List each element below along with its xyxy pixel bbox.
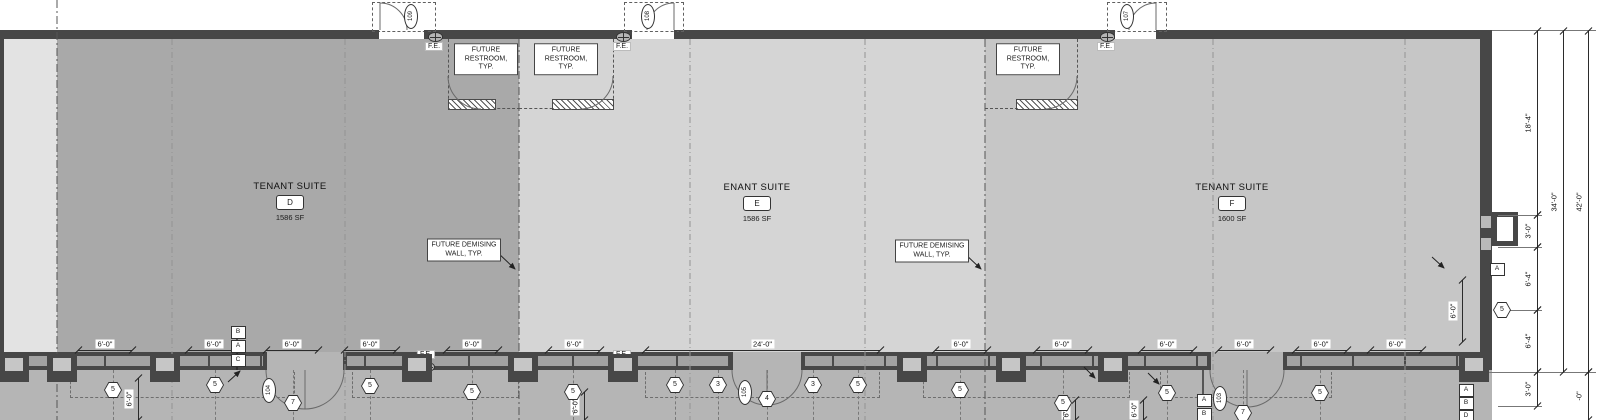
storefront-door-opening [1210,352,1284,370]
dimension-line [1295,350,1347,351]
hex-tag: 5 [1158,385,1176,401]
suite-letter-tag: E [743,196,771,211]
hex-tag: 7 [284,395,302,411]
storefront-pilaster [47,354,77,382]
restroom-note: FUTURE RESTROOM, TYP. [996,43,1060,75]
fire-extinguisher-label: F.E. [1097,42,1115,51]
adjacent-suite-strip [0,39,57,352]
storefront-pilaster [1459,354,1489,382]
storefront-pilaster [608,354,638,382]
restroom-note: FUTURE RESTROOM, TYP. [454,43,518,75]
hex-tag: 5 [951,382,969,398]
keynote-tag: A [231,340,246,353]
restroom-note: FUTURE RESTROOM, TYP. [534,43,598,75]
top-wall-segment [425,30,630,39]
hex-tag: 5 [206,377,224,393]
left-exterior-wall [0,30,4,370]
dimension-label: 6'-0" [1053,340,1072,349]
storefront-pilaster [996,354,1026,382]
dimension-line [935,350,987,351]
door-jamb [1156,30,1159,39]
hex-tag: 5 [361,378,379,394]
dimension-label: 6'-0" [1312,340,1331,349]
hex-tag: 5 [1493,302,1511,318]
dimension-label: 6'-0" [283,340,302,349]
suite-d-label: TENANT SUITE D 1586 SF [210,181,370,222]
dimension-line [645,350,880,351]
dimension-label: 42'-0" [1575,190,1584,213]
dimension-line [1537,310,1538,372]
right-wall-window [1481,216,1491,228]
door-number-tag: 109 [404,4,418,29]
storefront-door-opening [266,352,344,370]
dimension-line [1537,215,1538,247]
door-jamb [1283,352,1287,370]
suite-letter-tag: D [276,195,304,210]
plumbing-wall-hatch [552,99,614,110]
dimension-line [1218,350,1270,351]
door-number-tag: 107 [1120,4,1134,29]
suite-name: TENANT SUITE [1152,182,1312,193]
door-number-tag: 103 [1213,386,1227,411]
suite-area: 1600 SF [1152,214,1312,223]
suite-letter-tag: F [1218,196,1246,211]
dimension-line [1537,31,1538,215]
hex-tag: 5 [463,384,481,400]
dimension-line [1370,350,1422,351]
right-wall-window [1481,238,1491,250]
door-jamb [376,30,379,39]
dimension-label: 6'-0" [1235,340,1254,349]
keynote-tag: A [1197,394,1212,407]
canopy-dashed-outline [1160,372,1332,398]
dimension-label: 6'-0" [952,340,971,349]
extension-line [1492,30,1596,31]
door-jamb [424,30,427,39]
top-wall-segment [0,30,378,39]
dimension-line [1141,350,1193,351]
dimension-line [1588,31,1589,372]
dimension-label: 6'-0" [1387,340,1406,349]
door-jamb [263,352,267,370]
plumbing-wall-hatch [1016,99,1078,110]
keynote-tag: A [1459,384,1474,397]
fire-extinguisher-icon [1100,32,1115,42]
suite-name: TENANT SUITE [210,181,370,192]
door-jamb [1207,352,1211,370]
door-number-tag: 104 [262,378,276,403]
demising-note: FUTURE DEMISING WALL, TYP. [895,240,969,263]
hex-tag: 4 [758,391,776,407]
dimension-label: 6'-0" [1158,340,1177,349]
dimension-label: 6'-0" [361,340,380,349]
dimension-line [138,378,139,420]
keynote-tag: D [1459,410,1474,420]
hex-tag: 5 [1054,395,1072,411]
hex-tag: 7 [1234,405,1252,420]
fire-extinguisher-icon [428,32,443,42]
storefront-pilaster [0,354,29,382]
dimension-line [446,350,498,351]
hex-tag: 5 [1311,385,1329,401]
door-jamb [674,30,677,39]
dimension-label: 18'-4" [1524,111,1533,134]
dimension-line [1537,247,1538,310]
dimension-label: 24'-0" [751,340,774,349]
door-jamb [343,352,347,370]
dimension-label: 3'-0" [1524,222,1533,241]
dimension-line [1537,372,1538,406]
storefront-pilaster [150,354,180,382]
dimension-label: 6'-0" [205,340,224,349]
keynote-tag: B [231,326,246,339]
dimension-label: 6'-4" [1524,269,1533,288]
keynote-tag: B [1197,408,1212,420]
hex-tag: 5 [849,377,867,393]
dimension-line [266,350,318,351]
entry-vestibule [1107,2,1167,32]
suite-name: ENANT SUITE [677,182,837,193]
dimension-label: -0" [1575,389,1584,402]
storefront-door-opening [732,352,802,370]
dimension-label: 6'-4" [1524,332,1533,351]
keynote-tag: B [1459,397,1474,410]
floor-plan-canvas: TENANT SUITE D 1586 SF ENANT SUITE E 158… [0,0,1600,420]
dimension-label: 6'-0" [96,340,115,349]
demising-note: FUTURE DEMISING WALL, TYP. [427,239,501,262]
dimension-line [548,350,600,351]
storefront-pilaster [1098,354,1128,382]
fire-extinguisher-label: F.E. [613,42,631,51]
dimension-line [584,392,585,420]
dimension-line [1036,350,1088,351]
dimension-label: 6'-0" [125,390,134,409]
storefront-pilaster [897,354,927,382]
door-jamb [801,352,805,370]
suite-area: 1586 SF [210,213,370,222]
door-number-tag: 105 [738,380,752,405]
exterior-pier [1492,212,1518,246]
suite-area: 1586 SF [677,214,837,223]
dimension-label: 6'-0" [1449,302,1458,321]
keynote-tag: C [231,354,246,367]
dimension-label: 6'-0" [463,340,482,349]
door-jamb [729,352,733,370]
hex-tag: 5 [666,377,684,393]
dimension-label: 34'-0" [1550,190,1559,213]
storefront-pilaster [402,354,432,382]
suite-f-label: TENANT SUITE F 1600 SF [1152,182,1312,223]
dimension-label: 6'-0" [565,340,584,349]
dimension-label: 3'-0" [1524,380,1533,399]
dimension-label: 6'-0" [1130,401,1139,420]
dimension-line [78,350,132,351]
plumbing-wall-hatch [448,99,496,110]
right-exterior-wall [1480,30,1492,370]
dimension-line [1462,280,1463,342]
dimension-line [344,350,396,351]
top-wall-segment [676,30,1113,39]
hex-tag: 3 [804,377,822,393]
hex-tag: 3 [709,377,727,393]
storefront-pilaster [508,354,538,382]
door-number-tag: 108 [641,4,655,29]
fire-extinguisher-label: F.E. [425,42,443,51]
hex-tag: 5 [564,384,582,400]
fire-extinguisher-icon [616,32,631,42]
dimension-line [1588,372,1589,420]
suite-e-label: ENANT SUITE E 1586 SF [677,182,837,223]
keynote-tag: A [1490,263,1505,276]
top-wall-segment [1158,30,1480,39]
dimension-line [1563,31,1564,372]
hex-tag: 5 [104,382,122,398]
